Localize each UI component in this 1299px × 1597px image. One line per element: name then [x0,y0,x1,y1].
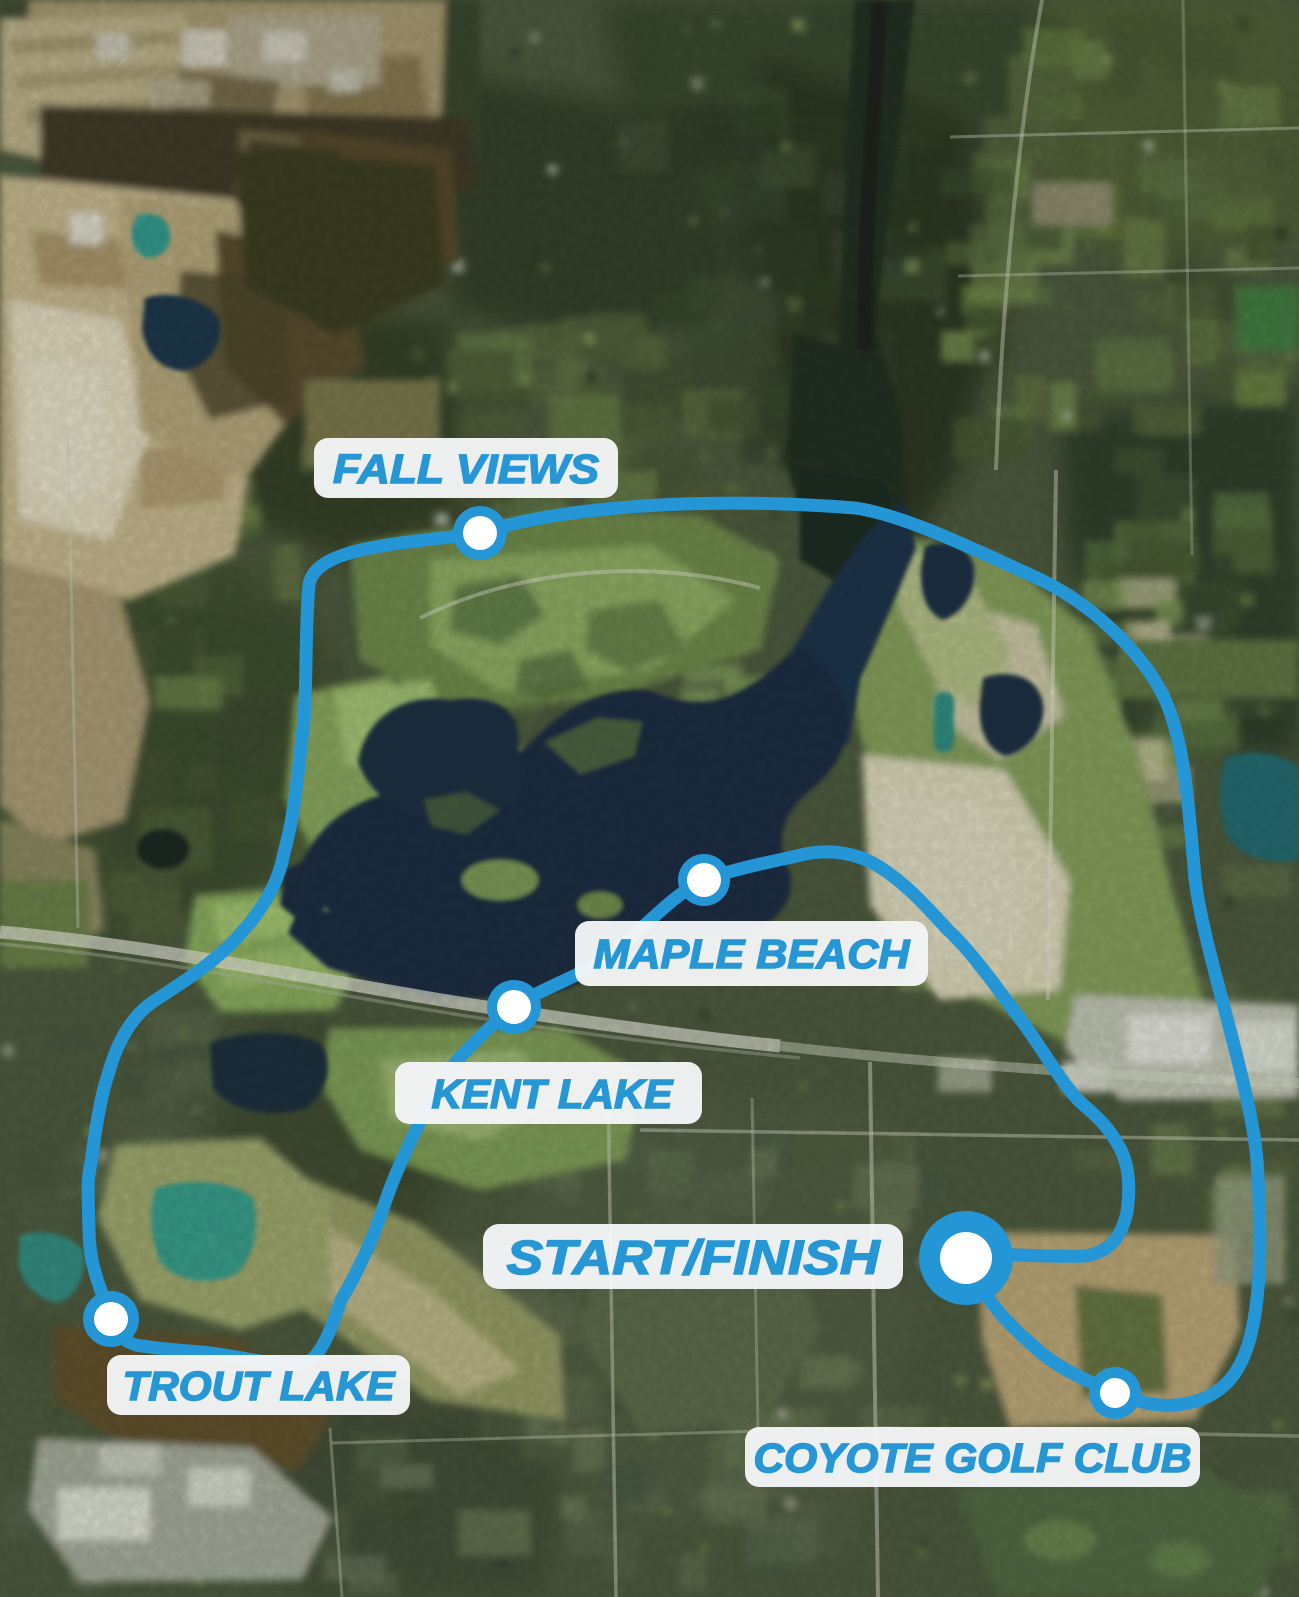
svg-text:START/FINISH: START/FINISH [507,1232,882,1285]
svg-text:FALL VIEWS: FALL VIEWS [333,446,599,492]
svg-text:MAPLE BEACH: MAPLE BEACH [594,931,911,977]
svg-text:TROUT LAKE: TROUT LAKE [123,1363,397,1409]
svg-text:KENT LAKE: KENT LAKE [432,1071,675,1117]
svg-text:COYOTE GOLF CLUB: COYOTE GOLF CLUB [754,1435,1192,1481]
